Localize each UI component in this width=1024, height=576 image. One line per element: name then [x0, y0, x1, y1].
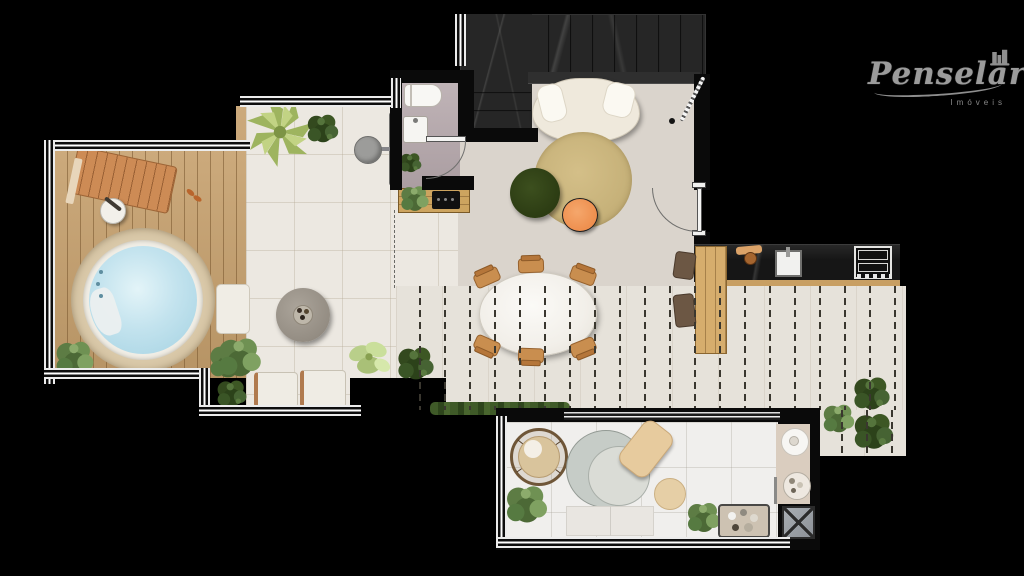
stair-treads — [528, 15, 705, 75]
grill-knob — [444, 198, 447, 201]
outdoor-shower-head — [354, 136, 382, 164]
agave-plant — [248, 98, 312, 160]
egg-chair-pillow — [524, 440, 542, 458]
calathea-plant — [342, 334, 396, 382]
powder-room-door — [774, 477, 777, 504]
shaft-duct — [782, 506, 815, 539]
lounge-cushion — [216, 284, 250, 334]
window-frame — [240, 96, 400, 107]
orange-side-table — [562, 198, 598, 232]
grill-knob — [437, 198, 440, 201]
window-frame — [391, 78, 401, 108]
washbasin-drain — [789, 436, 799, 446]
suite-plant — [502, 474, 552, 536]
grill-rack — [858, 263, 888, 272]
sink-faucet — [786, 247, 790, 257]
tray-dish — [728, 512, 736, 520]
tray-dish — [744, 523, 753, 532]
lounge-bench — [300, 370, 346, 408]
window-frame — [46, 140, 250, 151]
cup — [304, 309, 309, 314]
stair-end-wall — [458, 128, 538, 142]
hot-tub-jet — [99, 270, 103, 274]
window-frame — [496, 416, 507, 548]
tray-dish — [740, 509, 747, 516]
toiletry — [791, 488, 796, 493]
bar-stool — [672, 251, 697, 281]
hot-tub-jet — [96, 282, 100, 286]
tray-dish — [732, 524, 739, 531]
green-ottoman — [510, 168, 560, 218]
grill-rack — [858, 250, 888, 260]
toiletry — [789, 478, 795, 484]
floor-plan-canvas: Penselar Imóveis — [0, 0, 1024, 576]
lounge-bench — [254, 372, 298, 408]
window-frame — [455, 14, 466, 66]
window-frame — [564, 412, 780, 420]
cup — [300, 315, 305, 320]
glass-door-handle — [669, 118, 675, 124]
window-frame — [498, 537, 790, 548]
window-frame — [199, 405, 361, 416]
pergola-slats-overlay — [396, 286, 906, 410]
grill-knob — [451, 198, 454, 201]
window-frame — [44, 368, 210, 379]
grill-knobs — [857, 274, 890, 278]
brand-logo: Penselar Imóveis — [868, 44, 1018, 114]
brand-tagline: Imóveis — [926, 98, 1006, 107]
tray-dish — [750, 514, 758, 522]
round-bush — [304, 110, 342, 148]
dining-chair — [518, 258, 545, 274]
toilet-tank-line — [410, 85, 412, 106]
hot-tub-jet — [99, 294, 103, 298]
roof-projection-dashed-line — [394, 210, 395, 288]
pergola-slats-overlay — [818, 410, 906, 456]
window-frame — [44, 140, 55, 384]
floor-mat-seam — [610, 506, 611, 536]
cup — [297, 308, 302, 313]
toiletry — [797, 482, 803, 488]
food-plate — [744, 252, 757, 265]
pouf — [654, 478, 686, 510]
sink-faucet — [413, 118, 418, 123]
